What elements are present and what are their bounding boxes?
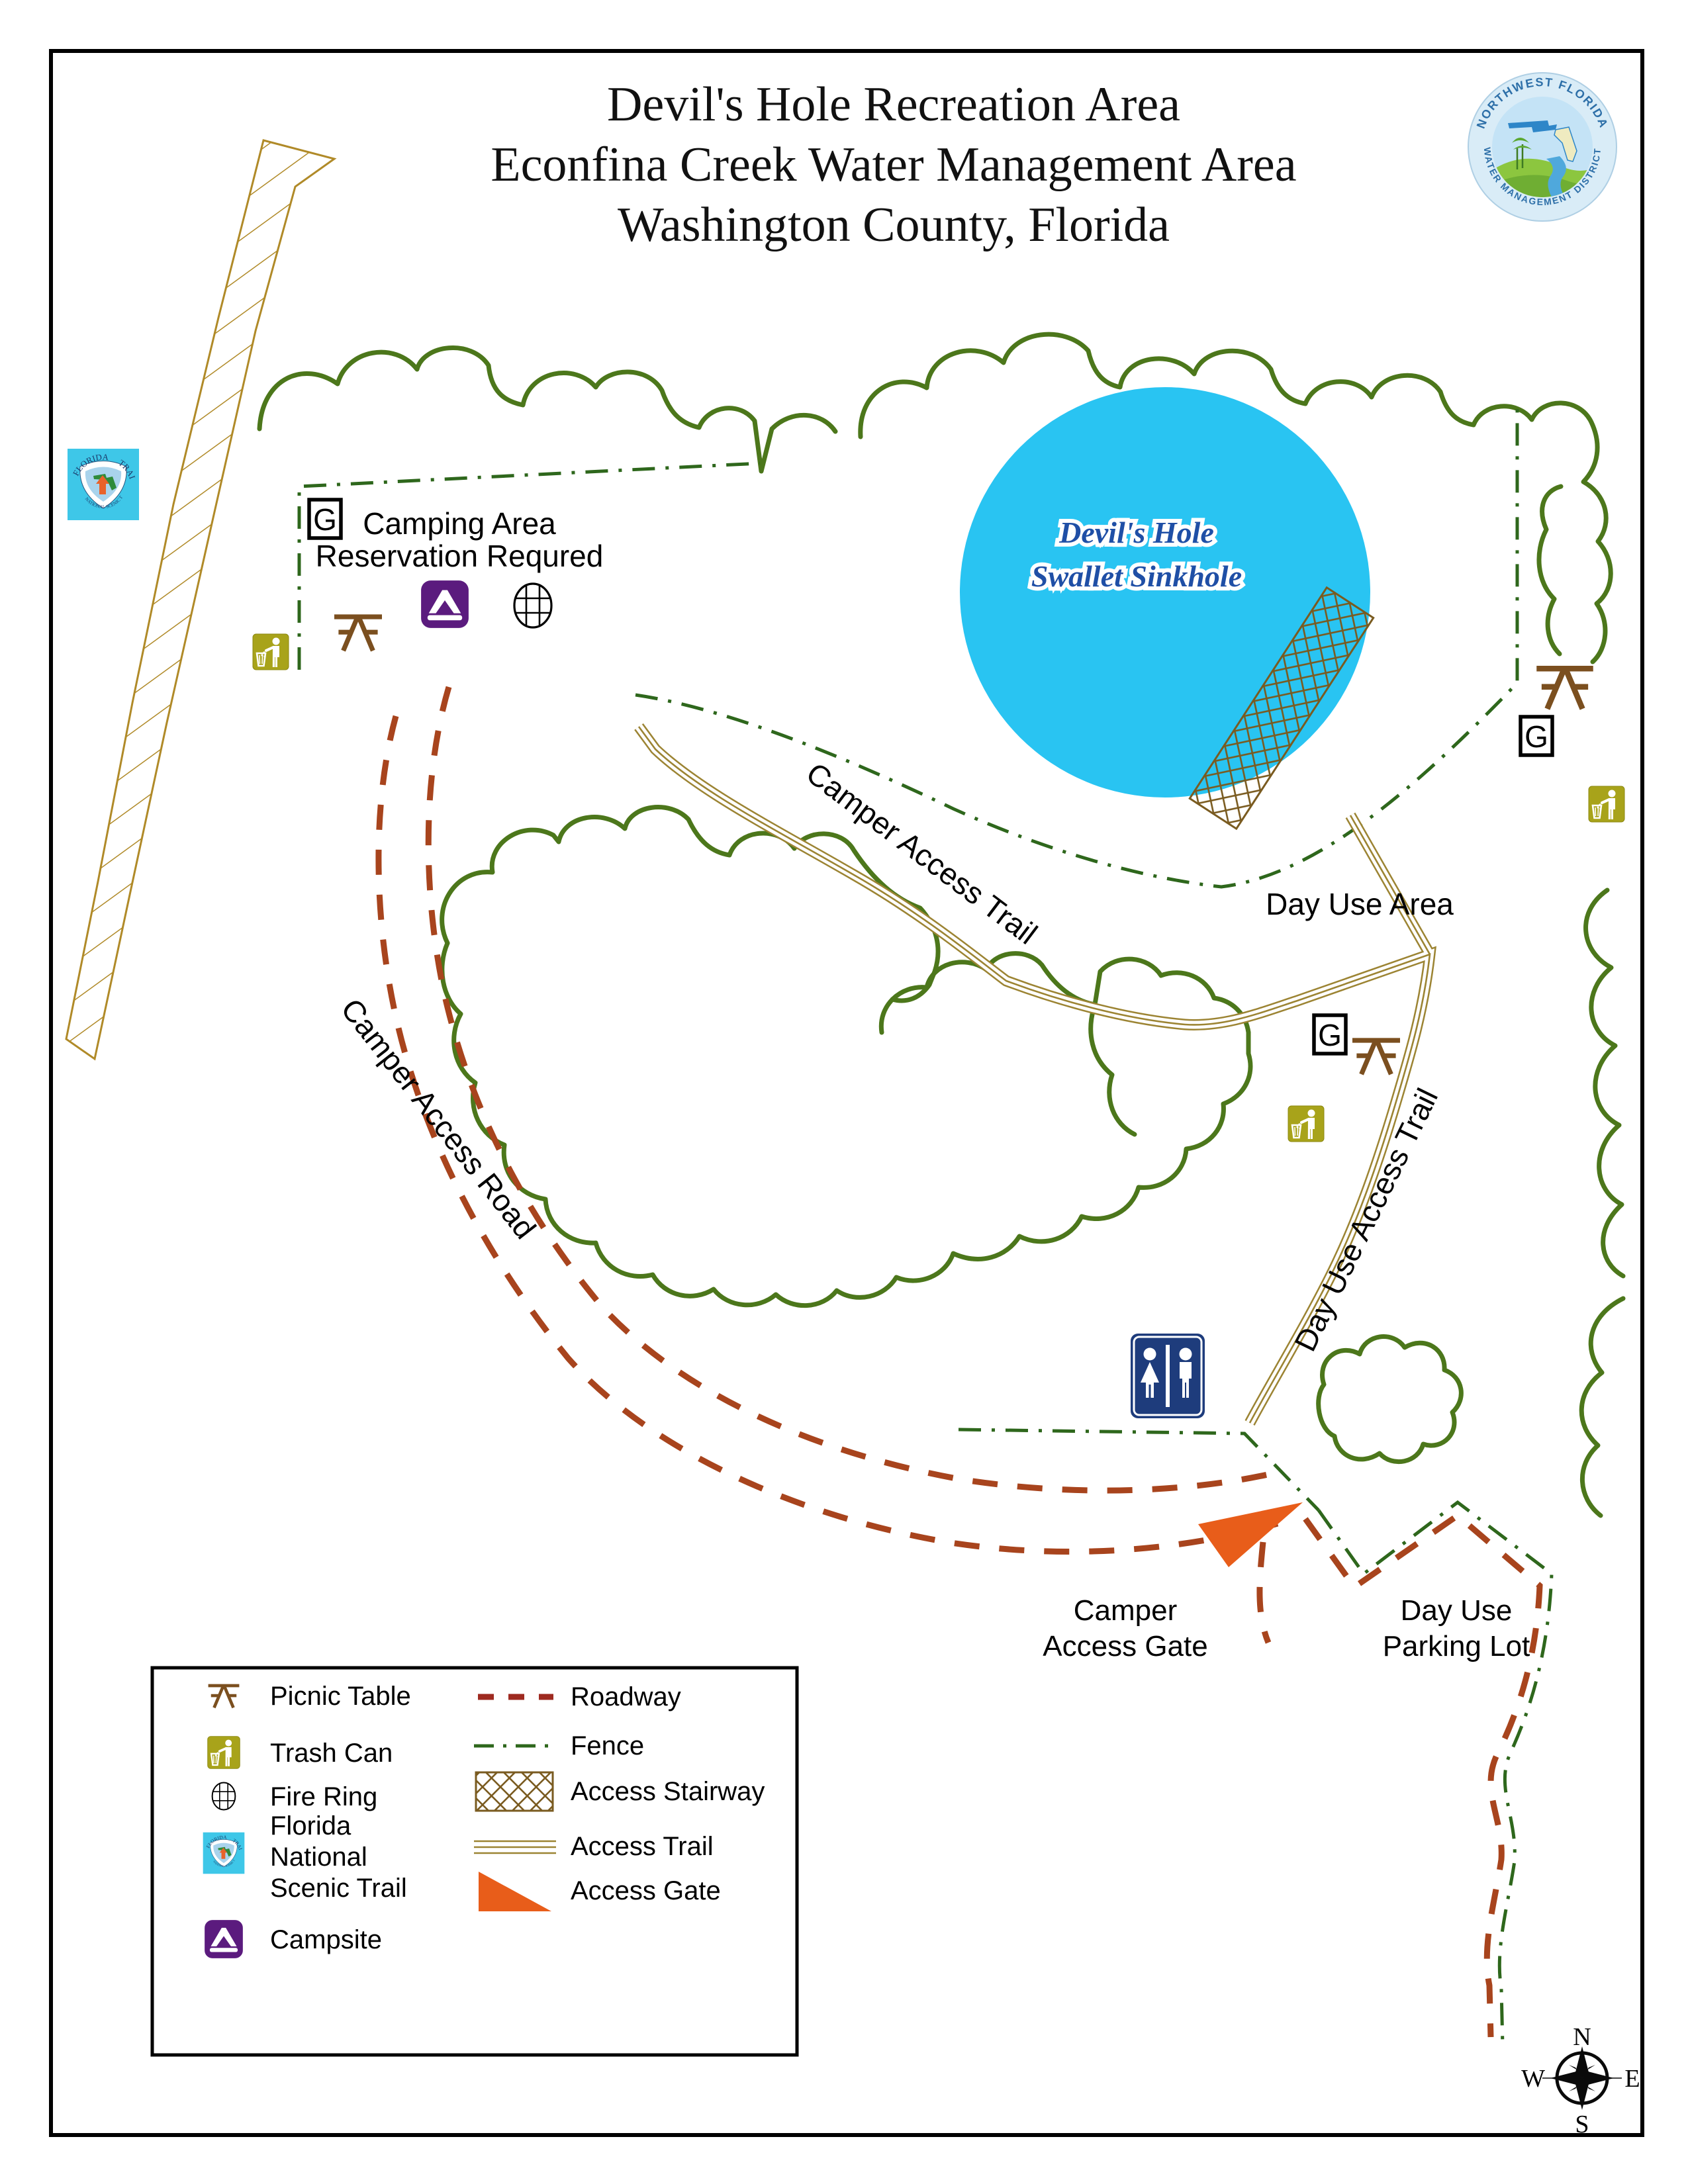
legend-label-campsite: Campsite — [270, 1925, 382, 1954]
legend-stairway-swatch — [476, 1772, 553, 1811]
day-use-area-label: Day Use Area — [1266, 887, 1454, 921]
legend-label-picnic-table: Picnic Table — [270, 1682, 411, 1711]
g-sign-day-use — [1314, 1015, 1346, 1054]
sinkhole-label-line-2: Swallet Sinkhole — [1031, 559, 1242, 593]
legend-label-fnst-line-2: National — [270, 1843, 367, 1872]
legend-item-campsite: Campsite — [205, 1920, 382, 1958]
legend-label-fence: Fence — [571, 1731, 644, 1760]
map-title: Devil's Hole Recreation Area Econfina Cr… — [491, 77, 1296, 252]
sinkhole: Devil's Hole Swallet Sinkhole — [960, 387, 1370, 797]
compass-e: E — [1624, 2065, 1640, 2093]
legend-label-fnst-line-3: Scenic Trail — [270, 1874, 407, 1903]
sinkhole-label-line-1: Devil's Hole — [1058, 516, 1214, 549]
fnst-hatched-band — [66, 140, 334, 1059]
legend-label-roadway: Roadway — [571, 1682, 681, 1711]
fence-parking-lot — [1319, 1502, 1552, 2046]
g-sign-east — [1521, 717, 1552, 755]
legend-label-access-stairway: Access Stairway — [571, 1777, 765, 1806]
road-gate-spur — [1260, 1542, 1268, 1643]
camper-access-gate-label-line-2: Access Gate — [1043, 1630, 1207, 1662]
legend-item-trash-can: Trash Can — [208, 1737, 393, 1769]
day-use-parking-label-line-1: Day Use — [1401, 1594, 1513, 1627]
compass-rose: N S E W — [1521, 2023, 1640, 2138]
legend-box — [152, 1668, 797, 2055]
stairway-trail-path — [1350, 815, 1430, 954]
title-line-2: Econfina Creek Water Management Area — [491, 138, 1296, 192]
fence-restroom — [959, 1430, 1319, 1510]
legend-label-fnst-line-1: Florida — [270, 1811, 352, 1841]
camper-access-gate-label-line-1: Camper — [1074, 1594, 1178, 1627]
camper-access-road-label: Camper Access Road — [334, 992, 543, 1246]
access-gate-icon — [1198, 1502, 1303, 1567]
legend-label-access-gate: Access Gate — [571, 1876, 721, 1905]
title-line-1: Devil's Hole Recreation Area — [607, 77, 1180, 132]
camping-area-label-line-2: Reservation Requred — [316, 539, 604, 573]
legend-label-access-trail: Access Trail — [571, 1832, 714, 1861]
legend: Picnic Table Trash Can Fire Ring Florida… — [152, 1668, 797, 2055]
legend-item-access-stairway: Access Stairway — [476, 1772, 765, 1811]
compass-n: N — [1573, 2023, 1591, 2051]
day-use-parking-label-line-2: Parking Lot — [1383, 1630, 1530, 1662]
g-sign-camping — [309, 500, 341, 538]
legend-label-trash-can: Trash Can — [270, 1739, 393, 1768]
camping-area-label-line-1: Camping Area — [363, 506, 556, 541]
road-edge-outer — [379, 716, 1278, 1552]
title-line-3: Washington County, Florida — [618, 198, 1170, 252]
compass-s: S — [1575, 2111, 1589, 2138]
map-page: G FLORIDA TRAIL — [0, 0, 1688, 2184]
legend-label-fire-ring: Fire Ring — [270, 1782, 377, 1811]
compass-w: W — [1521, 2065, 1545, 2093]
nwfwmd-logo: NORTHWEST FLORIDA WATER MANAGEMENT DISTR… — [1468, 73, 1617, 221]
